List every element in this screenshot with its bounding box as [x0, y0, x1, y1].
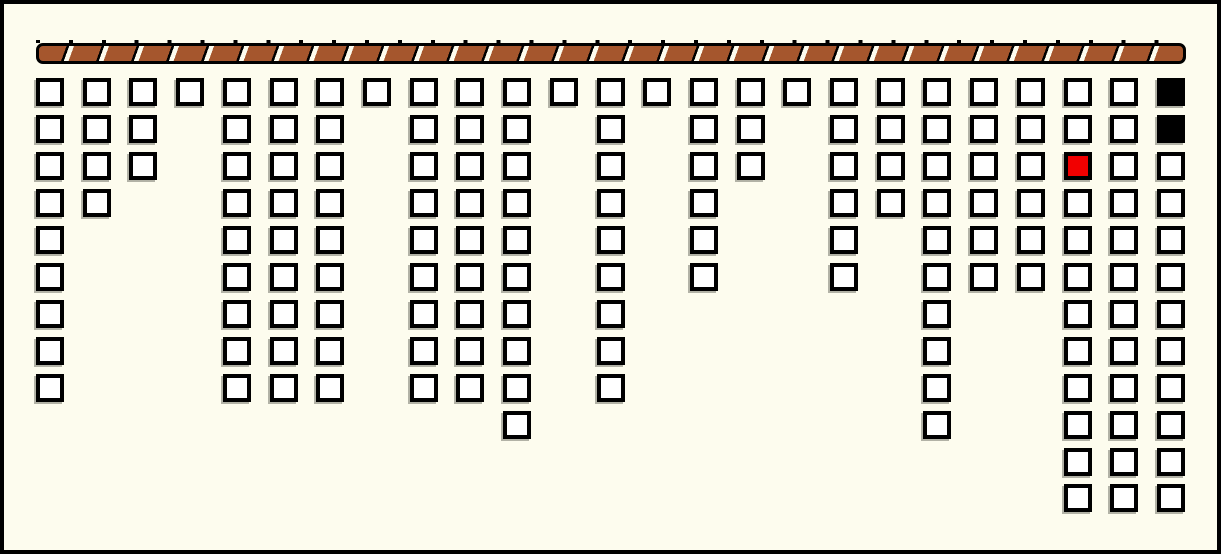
tile[interactable] — [1017, 78, 1045, 106]
tile[interactable] — [1064, 263, 1092, 291]
tile[interactable] — [597, 263, 625, 291]
tile[interactable] — [503, 115, 531, 143]
tile[interactable] — [410, 78, 438, 106]
tile[interactable] — [36, 78, 64, 106]
tile[interactable] — [1017, 189, 1045, 217]
tile[interactable] — [597, 300, 625, 328]
tile[interactable] — [830, 152, 858, 180]
tile[interactable] — [129, 115, 157, 143]
tile[interactable] — [923, 115, 951, 143]
tile[interactable] — [316, 78, 344, 106]
tile[interactable] — [270, 337, 298, 365]
tile[interactable] — [129, 78, 157, 106]
tile[interactable] — [1017, 152, 1045, 180]
tile[interactable] — [36, 189, 64, 217]
tile[interactable] — [36, 300, 64, 328]
tile[interactable] — [830, 115, 858, 143]
tile[interactable] — [970, 189, 998, 217]
tile[interactable] — [923, 263, 951, 291]
tile[interactable] — [1017, 263, 1045, 291]
tile[interactable] — [36, 374, 64, 402]
tile[interactable] — [36, 263, 64, 291]
tile[interactable] — [1110, 115, 1138, 143]
tile[interactable] — [223, 152, 251, 180]
tile[interactable] — [410, 189, 438, 217]
tile[interactable] — [737, 115, 765, 143]
tile[interactable] — [923, 300, 951, 328]
tile[interactable] — [316, 337, 344, 365]
tile[interactable] — [1064, 300, 1092, 328]
tile[interactable] — [830, 78, 858, 106]
tile[interactable] — [1110, 189, 1138, 217]
tile[interactable] — [923, 411, 951, 439]
tile[interactable] — [316, 226, 344, 254]
tile[interactable] — [643, 78, 671, 106]
tile[interactable] — [1157, 411, 1185, 439]
tile[interactable] — [83, 189, 111, 217]
tile[interactable] — [1157, 484, 1185, 512]
tile[interactable] — [923, 189, 951, 217]
tile[interactable] — [36, 337, 64, 365]
tile[interactable] — [503, 152, 531, 180]
tile[interactable] — [36, 115, 64, 143]
tile[interactable] — [1110, 411, 1138, 439]
red-tile[interactable] — [1064, 152, 1092, 180]
tile[interactable] — [970, 115, 998, 143]
tile[interactable] — [1017, 226, 1045, 254]
tile[interactable] — [410, 374, 438, 402]
tile[interactable] — [223, 78, 251, 106]
tile[interactable] — [970, 263, 998, 291]
tile[interactable] — [923, 226, 951, 254]
tile[interactable] — [1064, 78, 1092, 106]
tile[interactable] — [223, 263, 251, 291]
tile[interactable] — [877, 115, 905, 143]
tile[interactable] — [456, 226, 484, 254]
tile[interactable] — [597, 337, 625, 365]
tile[interactable] — [1064, 189, 1092, 217]
tile[interactable] — [1110, 484, 1138, 512]
tile[interactable] — [456, 189, 484, 217]
tile[interactable] — [316, 115, 344, 143]
tile[interactable] — [176, 78, 204, 106]
tile[interactable] — [877, 152, 905, 180]
tile[interactable] — [597, 226, 625, 254]
tile[interactable] — [1110, 337, 1138, 365]
tile[interactable] — [1110, 448, 1138, 476]
tile[interactable] — [690, 226, 718, 254]
tile[interactable] — [456, 337, 484, 365]
tile[interactable] — [1157, 300, 1185, 328]
tile[interactable] — [1064, 115, 1092, 143]
tile[interactable] — [456, 374, 484, 402]
tile[interactable] — [1157, 152, 1185, 180]
tile[interactable] — [223, 226, 251, 254]
tile[interactable] — [923, 374, 951, 402]
tile[interactable] — [970, 78, 998, 106]
tile[interactable] — [1157, 226, 1185, 254]
tile[interactable] — [270, 115, 298, 143]
tile[interactable] — [690, 78, 718, 106]
tile[interactable] — [1157, 263, 1185, 291]
tile[interactable] — [270, 300, 298, 328]
tile[interactable] — [830, 189, 858, 217]
game-window — [0, 0, 1221, 554]
tile[interactable] — [503, 226, 531, 254]
tile[interactable] — [223, 300, 251, 328]
tile[interactable] — [923, 337, 951, 365]
tile[interactable] — [410, 226, 438, 254]
tile[interactable] — [503, 411, 531, 439]
tile[interactable] — [129, 152, 157, 180]
tile[interactable] — [83, 152, 111, 180]
tile[interactable] — [830, 226, 858, 254]
tile[interactable] — [503, 374, 531, 402]
tile[interactable] — [503, 263, 531, 291]
tile[interactable] — [877, 189, 905, 217]
tile[interactable] — [410, 300, 438, 328]
tile[interactable] — [503, 337, 531, 365]
tile[interactable] — [1064, 337, 1092, 365]
tile[interactable] — [1157, 448, 1185, 476]
tile[interactable] — [1157, 374, 1185, 402]
tile[interactable] — [83, 115, 111, 143]
tile[interactable] — [690, 115, 718, 143]
tile[interactable] — [737, 152, 765, 180]
tile[interactable] — [36, 152, 64, 180]
tile[interactable] — [410, 152, 438, 180]
tile[interactable] — [597, 189, 625, 217]
tile[interactable] — [1064, 448, 1092, 476]
tile[interactable] — [456, 263, 484, 291]
tile[interactable] — [503, 189, 531, 217]
tile[interactable] — [597, 78, 625, 106]
tile[interactable] — [830, 263, 858, 291]
tile[interactable] — [550, 78, 578, 106]
tile[interactable] — [877, 78, 905, 106]
tile[interactable] — [597, 152, 625, 180]
tile[interactable] — [597, 374, 625, 402]
tile-board — [4, 4, 1217, 550]
tile[interactable] — [737, 78, 765, 106]
tile[interactable] — [270, 263, 298, 291]
tile[interactable] — [1157, 189, 1185, 217]
tile[interactable] — [1110, 300, 1138, 328]
tile[interactable] — [690, 189, 718, 217]
tile[interactable] — [1110, 263, 1138, 291]
tile[interactable] — [923, 152, 951, 180]
tile[interactable] — [970, 152, 998, 180]
tile[interactable] — [1064, 484, 1092, 512]
tile[interactable] — [1110, 226, 1138, 254]
tile[interactable] — [316, 189, 344, 217]
tile[interactable] — [223, 374, 251, 402]
tile[interactable] — [970, 226, 998, 254]
tile[interactable] — [923, 78, 951, 106]
tile[interactable] — [270, 78, 298, 106]
tile[interactable] — [1064, 411, 1092, 439]
tile[interactable] — [223, 189, 251, 217]
tile[interactable] — [1064, 374, 1092, 402]
tile[interactable] — [456, 115, 484, 143]
tile[interactable] — [316, 152, 344, 180]
tile[interactable] — [363, 78, 391, 106]
tile[interactable] — [223, 115, 251, 143]
tile[interactable] — [690, 152, 718, 180]
black-tile[interactable] — [1157, 115, 1185, 143]
tile[interactable] — [1017, 115, 1045, 143]
tile[interactable] — [270, 226, 298, 254]
tile[interactable] — [456, 152, 484, 180]
tile[interactable] — [503, 300, 531, 328]
tile[interactable] — [456, 300, 484, 328]
tile[interactable] — [1110, 78, 1138, 106]
tile[interactable] — [1110, 374, 1138, 402]
tile[interactable] — [410, 263, 438, 291]
tile[interactable] — [1157, 337, 1185, 365]
tile[interactable] — [270, 374, 298, 402]
tile[interactable] — [270, 189, 298, 217]
tile[interactable] — [36, 226, 64, 254]
tile[interactable] — [316, 374, 344, 402]
black-tile[interactable] — [1157, 78, 1185, 106]
tile[interactable] — [410, 337, 438, 365]
tile[interactable] — [410, 115, 438, 143]
tile[interactable] — [83, 78, 111, 106]
tile[interactable] — [316, 263, 344, 291]
tile[interactable] — [1110, 152, 1138, 180]
tile[interactable] — [223, 337, 251, 365]
tile[interactable] — [597, 115, 625, 143]
tile[interactable] — [1064, 226, 1092, 254]
tile[interactable] — [783, 78, 811, 106]
tile[interactable] — [456, 78, 484, 106]
tile[interactable] — [503, 78, 531, 106]
tile[interactable] — [316, 300, 344, 328]
tile[interactable] — [270, 152, 298, 180]
tile[interactable] — [690, 263, 718, 291]
